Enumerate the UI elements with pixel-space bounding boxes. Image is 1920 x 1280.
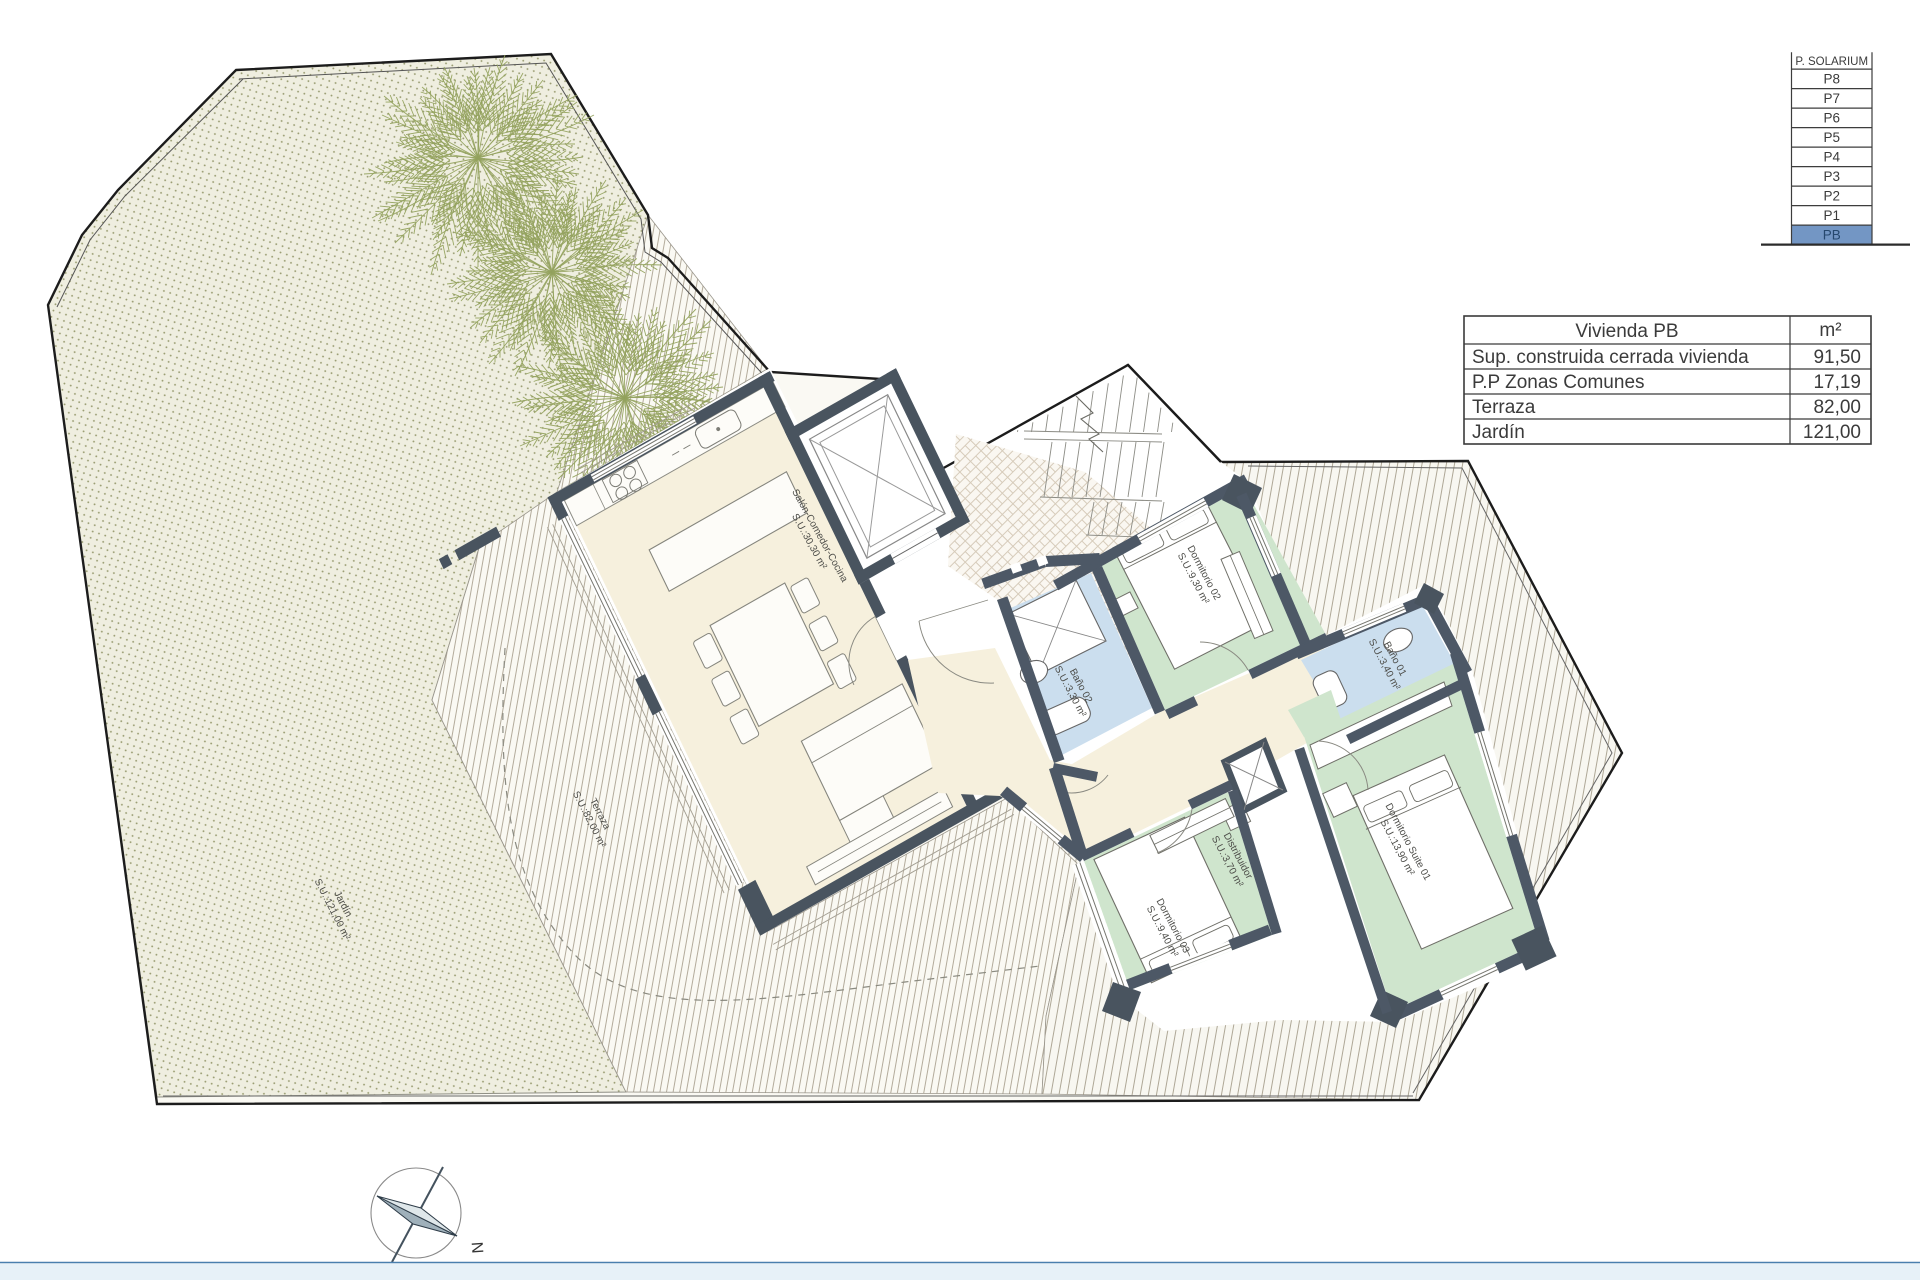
svg-text:Terraza: Terraza [1472,397,1536,418]
svg-text:Vivienda PB: Vivienda PB [1575,321,1678,342]
svg-text:P. SOLARIUM: P. SOLARIUM [1795,56,1868,68]
svg-text:P6: P6 [1823,111,1840,126]
svg-text:P8: P8 [1823,72,1840,87]
svg-text:17,19: 17,19 [1813,372,1861,393]
svg-text:m²: m² [1819,320,1841,341]
svg-text:P3: P3 [1823,169,1840,184]
svg-text:P7: P7 [1823,91,1840,106]
svg-text:PB: PB [1823,228,1841,243]
svg-text:Jardín: Jardín [1472,422,1525,443]
svg-text:P1: P1 [1823,208,1840,223]
svg-text:82,00: 82,00 [1813,397,1861,418]
svg-text:121,00: 121,00 [1803,422,1861,443]
svg-text:P.P Zonas Comunes: P.P Zonas Comunes [1472,372,1645,393]
svg-text:Sup. construida cerrada vivien: Sup. construida cerrada vivienda [1472,347,1749,368]
svg-text:P5: P5 [1823,130,1840,145]
svg-text:P2: P2 [1823,189,1840,204]
svg-text:N: N [468,1241,486,1254]
svg-text:P4: P4 [1823,150,1840,165]
svg-text:91,50: 91,50 [1813,347,1861,368]
